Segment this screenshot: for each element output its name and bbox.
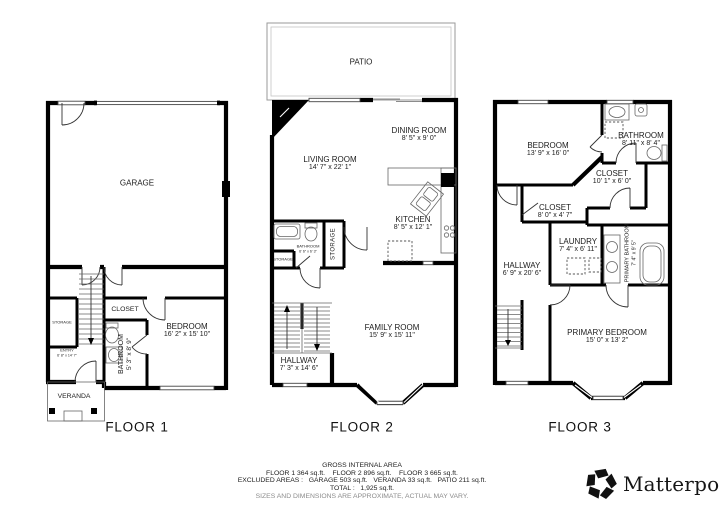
room-dims: 8' 5" x 12' 1": [394, 225, 432, 233]
room-name: PRIMARY BEDROOM: [567, 328, 647, 337]
room-name: PRIMARY BATHROOM: [625, 224, 632, 283]
room-name: BEDROOM: [164, 322, 210, 331]
room-dims: 15' 0" x 13' 2": [567, 338, 647, 346]
room-name: GARAGE: [120, 178, 154, 187]
room-label-veranda: VERANDA: [58, 393, 91, 401]
room-dims: 16' 2" x 15' 10": [164, 332, 210, 340]
room-dims: 10' 1" x 6' 0": [593, 179, 631, 187]
room-label-primary-bathroom: PRIMARY BATHROOM 7' 4" x 9' 5": [625, 224, 638, 283]
room-name: LAUNDRY: [559, 237, 597, 246]
total-area-line: TOTAL : 1,925 sq.ft.: [182, 485, 542, 493]
room-dims: 6' 8" x 14' 7": [57, 353, 77, 357]
room-name: STORAGE: [52, 321, 72, 326]
room-dims: 6' 9" x 20' 6": [503, 271, 541, 279]
floor-1-plan: [38, 95, 238, 427]
room-dims: 5' 3" x 8' 9": [126, 334, 134, 374]
room-dims: 7' 4" x 9' 5": [631, 224, 637, 283]
room-dims: 8' 11" x 8' 4": [618, 141, 664, 149]
room-name: HALLWAY: [280, 356, 318, 365]
room-name: FAMILY ROOM: [365, 323, 420, 332]
room-name: BATHROOM: [618, 131, 664, 140]
floor-1-title: FLOOR 1: [105, 420, 168, 435]
room-label-bathroom-f1: BATHROOM 5' 3" x 8' 9": [118, 334, 134, 374]
room-label-dining: DINING ROOM 8' 5" x 9' 0": [391, 126, 446, 144]
room-label-storage-small-f2: STORAGE: [273, 258, 293, 263]
room-name: STORAGE: [273, 258, 293, 263]
floor-2-stairs: [272, 303, 332, 353]
area-summary: GROSS INTERNAL AREA FLOOR 1 364 sq.ft. F…: [182, 462, 542, 501]
floor-3-title: FLOOR 3: [548, 420, 611, 435]
room-dims: 14' 7" x 22' 1": [303, 165, 356, 173]
room-label-closet-large-f3: CLOSET 10' 1" x 6' 0": [593, 169, 631, 187]
excluded-areas-line: EXCLUDED AREAS : GARAGE 503 sq.ft. VERAN…: [182, 477, 542, 485]
room-name: STORAGE: [330, 228, 337, 260]
room-label-entry-f1: ENTRY 6' 8" x 14' 7": [57, 349, 77, 358]
room-name: CLOSET: [538, 203, 573, 212]
room-name: KITCHEN: [394, 215, 432, 224]
room-label-closet-f1: CLOSET: [111, 306, 138, 314]
room-name: BEDROOM: [527, 141, 569, 150]
gross-internal-area-heading: GROSS INTERNAL AREA: [182, 462, 542, 470]
room-name: PATIO: [350, 57, 373, 66]
room-label-storage-tall-f2: STORAGE: [330, 228, 337, 260]
room-name: CLOSET: [111, 306, 138, 314]
room-label-kitchen: KITCHEN 8' 5" x 12' 1": [394, 215, 432, 233]
floor-1-windows: [58, 101, 220, 390]
room-dims: 13' 9" x 16' 0": [527, 151, 569, 159]
room-label-bedroom-f3: BEDROOM 13' 9" x 16' 0": [527, 141, 569, 159]
room-label-primary-bedroom: PRIMARY BEDROOM 15' 0" x 13' 2": [567, 328, 647, 346]
floor-3-stairs: [495, 306, 522, 348]
matterport-logo: Matterport™: [584, 467, 720, 501]
room-name: LIVING ROOM: [303, 155, 356, 164]
room-label-garage: GARAGE: [120, 178, 154, 187]
floor-areas-line: FLOOR 1 364 sq.ft. FLOOR 2 896 sq.ft. FL…: [182, 470, 542, 478]
room-label-bathroom-f3: BATHROOM 8' 11" x 8' 4": [618, 131, 664, 149]
room-label-hallway-f2: HALLWAY 7' 3" x 14' 6": [280, 356, 318, 374]
room-dims: 7' 4" x 6' 11": [559, 247, 597, 255]
room-dims: 6' 6" x 6' 3": [297, 249, 320, 253]
room-label-bathroom-f2: BATHROOM 6' 6" x 6' 3": [297, 245, 320, 254]
floor-2-title: FLOOR 2: [330, 420, 393, 435]
room-label-bedroom-f1: BEDROOM 16' 2" x 15' 10": [164, 322, 210, 340]
matterport-logo-icon: [584, 467, 618, 501]
room-label-storage-f1: STORAGE: [52, 321, 72, 326]
room-label-hallway-f3: HALLWAY 6' 9" x 20' 6": [503, 261, 541, 279]
room-name: DINING ROOM: [391, 126, 446, 135]
room-name: CLOSET: [593, 169, 631, 178]
matterport-wordmark: Matterport: [623, 472, 720, 496]
room-name: HALLWAY: [503, 261, 541, 270]
room-label-family: FAMILY ROOM 15' 9" x 15' 11": [365, 323, 420, 341]
room-dims: 7' 3" x 14' 6": [280, 366, 318, 374]
room-label-closet-small-f3: CLOSET 8' 0" x 4' 7": [538, 203, 573, 221]
disclaimer-line: SIZES AND DIMENSIONS ARE APPROXIMATE, AC…: [182, 493, 542, 501]
room-name: BATHROOM: [118, 334, 126, 374]
floor-3-laundry-fixtures: [567, 258, 601, 274]
room-name: VERANDA: [58, 393, 91, 401]
floor-2-bathroom-fixtures: [274, 223, 317, 241]
room-label-patio: PATIO: [350, 57, 373, 66]
floorplan-sheet: GARAGE CLOSET BEDROOM 16' 2" x 15' 10" B…: [0, 0, 720, 508]
room-label-living: LIVING ROOM 14' 7" x 22' 1": [303, 155, 356, 173]
floor-1-veranda: [48, 382, 105, 421]
room-label-laundry: LAUNDRY 7' 4" x 6' 11": [559, 237, 597, 255]
room-dims: 15' 9" x 15' 11": [365, 333, 420, 341]
room-dims: 8' 0" x 4' 7": [538, 213, 573, 221]
room-dims: 8' 5" x 9' 0": [391, 136, 446, 144]
